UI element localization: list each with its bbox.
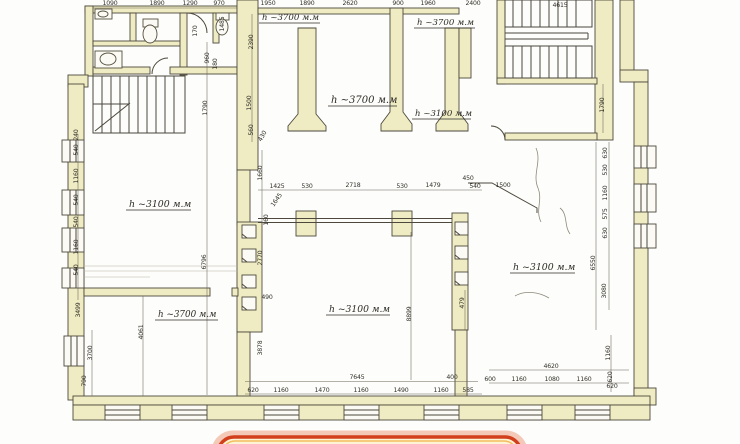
window-right-1 bbox=[634, 146, 656, 168]
window-right-2 bbox=[634, 184, 656, 212]
room-height-label: h ~3100 м.м bbox=[415, 109, 472, 119]
dimension-label: 1160 bbox=[605, 345, 612, 360]
staircase-top-right bbox=[505, 0, 592, 78]
dimension-label: 490 bbox=[261, 294, 272, 301]
dimension-label: 430 bbox=[257, 129, 269, 142]
room-height-label: h ~3100 м.м bbox=[329, 304, 390, 315]
dimension-label: 620 bbox=[606, 383, 617, 390]
door-arc bbox=[491, 126, 505, 140]
dimension-label: 1160 bbox=[602, 185, 609, 200]
dimension-label: 1500 bbox=[496, 182, 511, 189]
dimension-label: 620 bbox=[247, 387, 258, 394]
dimension-label: 170 bbox=[192, 25, 199, 36]
dimension-label: 530 bbox=[396, 183, 407, 190]
dimension-label: 540 bbox=[73, 194, 80, 205]
dimension-label: 790 bbox=[81, 375, 88, 386]
dimension-label: 1160 bbox=[274, 387, 289, 394]
washbasin-icon bbox=[95, 9, 112, 19]
dimension-label: 1080 bbox=[545, 376, 560, 383]
dimension-label: 400 bbox=[446, 374, 457, 381]
window-right-3 bbox=[634, 224, 656, 248]
dimension-label: 960 bbox=[204, 52, 211, 63]
sink-counter bbox=[95, 51, 122, 68]
dimension-label: 160 bbox=[263, 214, 270, 225]
dimension-label: 2718 bbox=[346, 182, 361, 189]
room-height-label: h ~3100 м.м bbox=[129, 199, 191, 210]
dimension-label: 1160 bbox=[512, 376, 527, 383]
dimension-label: 4620 bbox=[544, 363, 559, 370]
dimension-label: 585 bbox=[462, 387, 473, 394]
dimension-label: 560 bbox=[248, 124, 255, 135]
dimension-label: 1160 bbox=[354, 387, 369, 394]
niche-squares-right bbox=[455, 222, 468, 285]
window-left-5 bbox=[64, 336, 84, 366]
dimension-label: 1160 bbox=[73, 239, 80, 254]
window-bottom-row bbox=[105, 405, 610, 420]
dimension-label: 1645 bbox=[270, 192, 284, 208]
dimension-label: 1790 bbox=[202, 100, 209, 115]
dimension-label: 1160 bbox=[73, 168, 80, 183]
dimension-label: 540 bbox=[469, 183, 480, 190]
plan-lines bbox=[84, 148, 570, 298]
dimension-label: 1090 bbox=[103, 0, 118, 7]
dimension-label: 3080 bbox=[601, 283, 608, 298]
dimension-label: 1290 bbox=[183, 0, 198, 7]
dimension-label: 2400 bbox=[466, 0, 481, 7]
room-height-label: h ~3700 м.м bbox=[417, 18, 474, 28]
dimension-label: 1950 bbox=[261, 0, 276, 7]
dimension-label: 2770 bbox=[257, 250, 264, 265]
dimension-label: 1425 bbox=[270, 183, 285, 190]
dimension-label: 1790 bbox=[599, 97, 606, 112]
room-height-label: h ~3700 м.м bbox=[331, 95, 397, 106]
dimension-label: 2620 bbox=[343, 0, 358, 7]
dimension-label: 3878 bbox=[257, 340, 264, 355]
floor-plan-svg: 1090189012909701950189026209001960240046… bbox=[0, 0, 740, 444]
dimension-label: 900 bbox=[392, 0, 403, 7]
highlighted-button[interactable] bbox=[215, 434, 524, 444]
dimension-label: 479 bbox=[459, 297, 466, 308]
dimension-label: 530 bbox=[301, 183, 312, 190]
staircase-top-left bbox=[93, 76, 185, 133]
dimension-label: 7645 bbox=[350, 374, 365, 381]
dimension-label: 540 bbox=[73, 144, 80, 155]
dimension-label: 1660 bbox=[257, 165, 264, 180]
dimension-label: 630 bbox=[602, 147, 609, 158]
dimension-label: 240 bbox=[73, 129, 80, 140]
dimension-label: 530 bbox=[602, 164, 609, 175]
dimension-label: 1960 bbox=[421, 0, 436, 7]
dimension-label: 620 bbox=[607, 371, 614, 382]
dimension-label: 540 bbox=[73, 216, 80, 227]
dimension-label: 970 bbox=[213, 0, 224, 7]
dimension-label: 8899 bbox=[406, 306, 413, 321]
scanned-floor-plan-page: 1090189012909701950189026209001960240046… bbox=[0, 0, 740, 444]
dimension-label: 3700 bbox=[87, 345, 94, 360]
toilet-icon bbox=[143, 19, 158, 43]
room-height-label: h ~3100 м.м bbox=[513, 262, 575, 273]
dimension-label: 1470 bbox=[315, 387, 330, 394]
dimension-label: 180 bbox=[212, 58, 219, 69]
dimension-label: 630 bbox=[602, 227, 609, 238]
dimension-label: 1890 bbox=[150, 0, 165, 7]
room-height-label: h ~3700 м.м bbox=[262, 13, 319, 23]
door-arc bbox=[152, 58, 168, 74]
dimension-label: 1485 bbox=[219, 16, 226, 31]
dimension-label: 575 bbox=[602, 208, 609, 219]
dimension-label: 6796 bbox=[201, 254, 208, 269]
dimension-label: 1160 bbox=[434, 387, 449, 394]
room-labels: h ~3700 м.мh ~3700 м.мh ~3700 м.мh ~3100… bbox=[126, 13, 575, 320]
dimension-labels: 1090189012909701950189026209001960240046… bbox=[73, 0, 618, 394]
dimension-label: 600 bbox=[484, 376, 495, 383]
room-height-label: h ~3700 м.м bbox=[158, 310, 216, 320]
dimension-label: 2390 bbox=[248, 34, 255, 49]
dimension-label: 6550 bbox=[590, 255, 597, 270]
dimension-label: 4061 bbox=[138, 324, 145, 339]
dimension-label: 1479 bbox=[426, 182, 441, 189]
dimension-label: 1890 bbox=[300, 0, 315, 7]
dimension-label: 450 bbox=[462, 175, 473, 182]
dimension-label: 540 bbox=[73, 264, 80, 275]
dimension-label: 4615 bbox=[553, 2, 568, 9]
dimension-label: 1490 bbox=[394, 387, 409, 394]
dimension-label: 1500 bbox=[246, 95, 253, 110]
dimension-label: 3499 bbox=[75, 302, 82, 317]
dimension-label: 1160 bbox=[577, 376, 592, 383]
